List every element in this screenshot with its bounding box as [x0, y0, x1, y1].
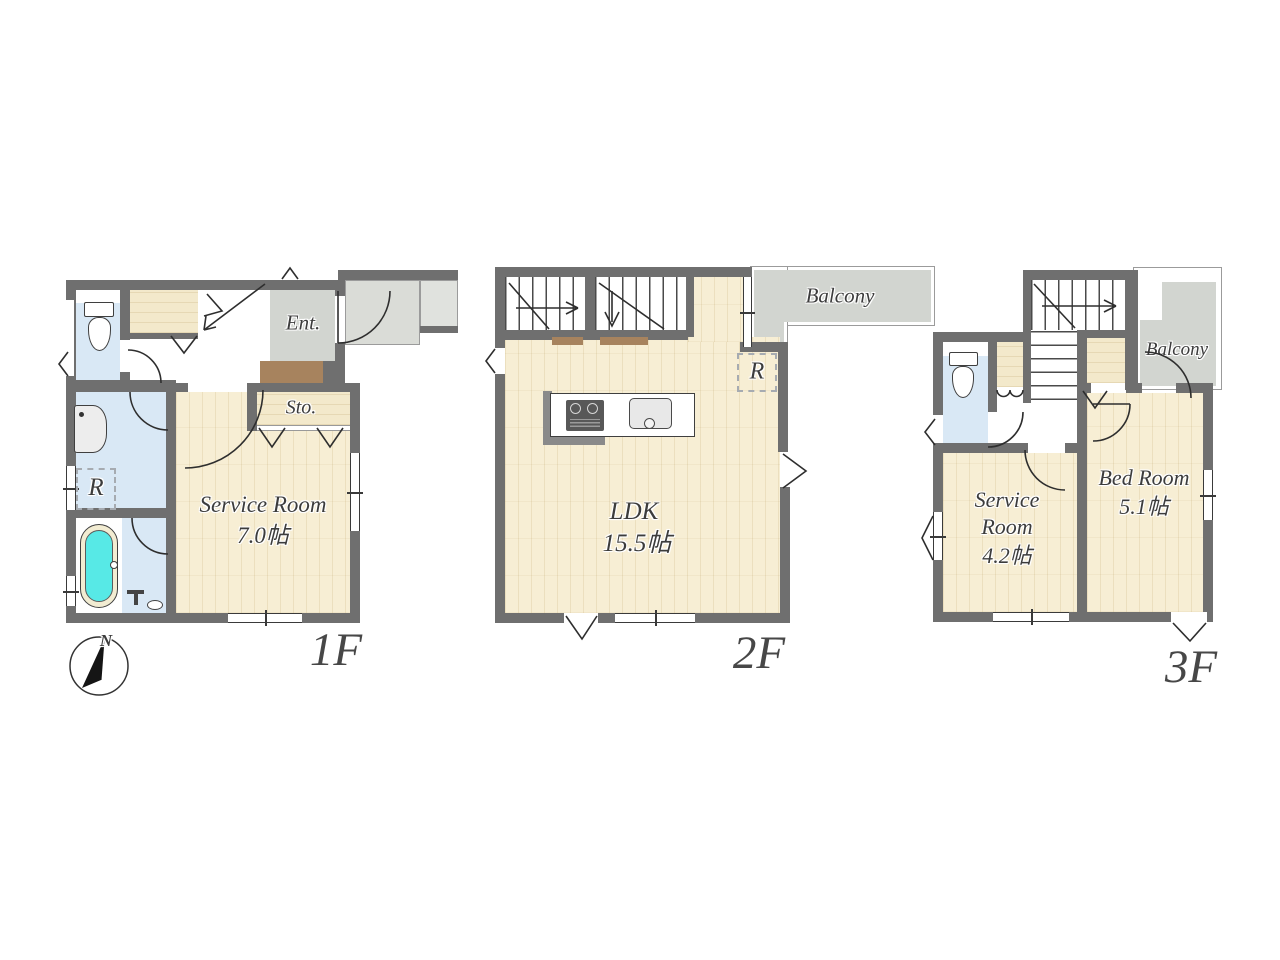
sink-faucet: [644, 418, 655, 429]
ldk-label: LDK: [610, 498, 659, 526]
stove-grill: [570, 419, 600, 427]
wall: [1065, 443, 1077, 453]
storage-label: Sto.: [286, 397, 317, 420]
toilet-tank-icon: [84, 302, 114, 317]
bed-room-size: 5.1帖: [1119, 489, 1169, 521]
window-opening: [564, 613, 598, 623]
balcony-notch-3f: [1140, 282, 1162, 320]
service-room-label-line2: Room: [981, 514, 1032, 540]
window: [615, 613, 695, 623]
floor-label-1f: 1F: [310, 623, 362, 677]
balcony-label-3f: Balcony: [1146, 339, 1208, 361]
floorplan-canvas: Ent. Sto. Service Room 7.0帖 R 1F: [0, 0, 1280, 960]
wall: [686, 277, 694, 337]
window: [66, 576, 76, 606]
window: [495, 348, 505, 374]
wall: [247, 383, 257, 431]
wall: [495, 267, 505, 623]
entrance-step-brown: [260, 361, 323, 383]
wall: [1077, 330, 1087, 390]
stairs-2f[interactable]: [505, 277, 585, 330]
closet-folding-door-3f: [997, 390, 1023, 397]
stove-burner: [570, 403, 581, 414]
balcony-floor-2f: [754, 270, 784, 346]
entrance-label: Ent.: [286, 311, 320, 336]
wall: [127, 333, 198, 339]
closet-3f: [997, 342, 1023, 387]
stairs-3f[interactable]: [1031, 280, 1125, 330]
wall: [988, 342, 997, 412]
service-room-size: 7.0帖: [237, 516, 289, 550]
wall: [1176, 383, 1213, 393]
window-open-mark: [922, 516, 933, 560]
window: [1203, 470, 1213, 520]
kitchen-counter-edge: [543, 437, 605, 445]
washbasin-faucet-dot: [79, 412, 84, 417]
wall: [933, 332, 943, 622]
wall: [778, 345, 788, 452]
stair-threshold: [600, 337, 648, 345]
window: [350, 453, 360, 531]
stove-burner: [587, 403, 598, 414]
window-opening: [1171, 612, 1207, 622]
bath-stool-icon: [147, 600, 163, 610]
closet-3f: [1087, 338, 1125, 383]
window-open-mark: [1173, 623, 1206, 641]
wall: [585, 277, 595, 333]
bathtub-faucet-knob: [110, 561, 118, 569]
service-room-size: 4.2帖: [982, 538, 1032, 570]
wall: [1077, 390, 1087, 622]
ldk-floor: [688, 277, 743, 342]
wall: [338, 270, 458, 280]
ldk-size: 15.5帖: [603, 523, 672, 559]
window: [66, 466, 76, 510]
service-room-label: Service Room: [199, 492, 326, 518]
closet-1f: [130, 290, 198, 333]
bed-room-label: Bed Room: [1098, 465, 1189, 491]
floor-label-3f: 3F: [1165, 640, 1217, 694]
wall: [1077, 383, 1091, 393]
window: [933, 415, 943, 443]
window: [933, 512, 943, 560]
wall: [780, 487, 790, 623]
wall: [505, 330, 688, 340]
refrigerator-symbol-label: R: [750, 359, 765, 386]
window: [228, 613, 302, 623]
wall: [1126, 383, 1142, 393]
porch-step-1: [345, 280, 420, 345]
window: [66, 300, 74, 376]
service-room-label-line1: Service: [975, 487, 1040, 513]
storage-opening-1f: [257, 425, 350, 431]
wall: [66, 280, 345, 290]
floor-label-2f: 2F: [733, 626, 785, 680]
wall: [166, 380, 176, 613]
toilet-tank-icon: [949, 352, 978, 366]
stairs-2f[interactable]: [595, 277, 688, 330]
window-open-mark: [486, 349, 495, 373]
wall: [247, 383, 360, 392]
wall: [495, 267, 752, 277]
shower-mixer-stem: [134, 594, 138, 605]
wall: [1023, 270, 1133, 280]
wall: [166, 383, 188, 392]
wall: [933, 332, 1031, 342]
stairs-3f[interactable]: [1031, 330, 1077, 400]
laundry-symbol-label: R: [88, 474, 103, 502]
wall: [66, 613, 360, 623]
door-open-mark-2f: [783, 454, 806, 488]
window: [993, 612, 1069, 622]
wall: [933, 443, 1028, 453]
stair-threshold: [552, 337, 583, 345]
wall: [335, 280, 345, 296]
window-to-balcony: [743, 277, 752, 347]
porch-step-edge: [420, 326, 458, 333]
bathtub-water: [85, 530, 113, 602]
entrance-top-vent-mark: [282, 268, 298, 279]
balcony-label-2f: Balcony: [806, 284, 875, 309]
wall: [66, 380, 176, 392]
compass-north-label: N: [100, 631, 112, 651]
toilet-door-arc-3f: [988, 412, 1023, 447]
